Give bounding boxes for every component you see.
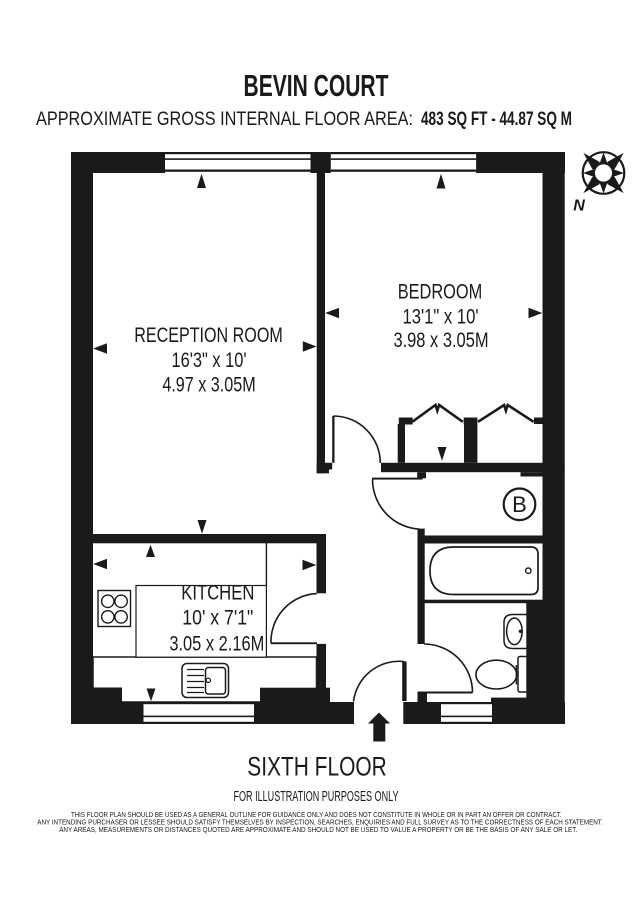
svg-text:RECEPTION ROOM: RECEPTION ROOM xyxy=(134,323,283,347)
svg-text:APPROXIMATE GROSS INTERNAL FLO: APPROXIMATE GROSS INTERNAL FLOOR AREA:48… xyxy=(36,109,572,130)
svg-text:BEDROOM: BEDROOM xyxy=(398,280,483,304)
svg-text:FOR ILLUSTRATION PURPOSES ONLY: FOR ILLUSTRATION PURPOSES ONLY xyxy=(234,789,399,805)
svg-text:ANY INTENDING PURCHASER OR LES: ANY INTENDING PURCHASER OR LESSEE SHOULD… xyxy=(37,820,602,827)
svg-text:KITCHEN: KITCHEN xyxy=(181,581,254,605)
svg-text:3.05 x 2.16M: 3.05 x 2.16M xyxy=(169,632,264,656)
svg-text:13'1" x 10': 13'1" x 10' xyxy=(403,305,479,329)
svg-text:N: N xyxy=(573,198,585,215)
svg-text:16'3" x 10': 16'3" x 10' xyxy=(172,348,247,372)
svg-text:10' x 7'1": 10' x 7'1" xyxy=(182,606,253,630)
svg-text:4.97 x 3.05M: 4.97 x 3.05M xyxy=(162,373,255,397)
svg-text:B: B xyxy=(512,492,527,517)
svg-text:3.98 x 3.05M: 3.98 x 3.05M xyxy=(393,328,488,352)
svg-text:ANY AREAS, MEASUREMENTS OR DIS: ANY AREAS, MEASUREMENTS OR DISTANCES QUO… xyxy=(59,827,577,834)
svg-text:SIXTH FLOOR: SIXTH FLOOR xyxy=(247,752,387,782)
svg-text:BEVIN COURT: BEVIN COURT xyxy=(244,68,389,103)
svg-text:THIS FLOOR PLAN SHOULD BE USED: THIS FLOOR PLAN SHOULD BE USED AS A GENE… xyxy=(71,812,562,819)
